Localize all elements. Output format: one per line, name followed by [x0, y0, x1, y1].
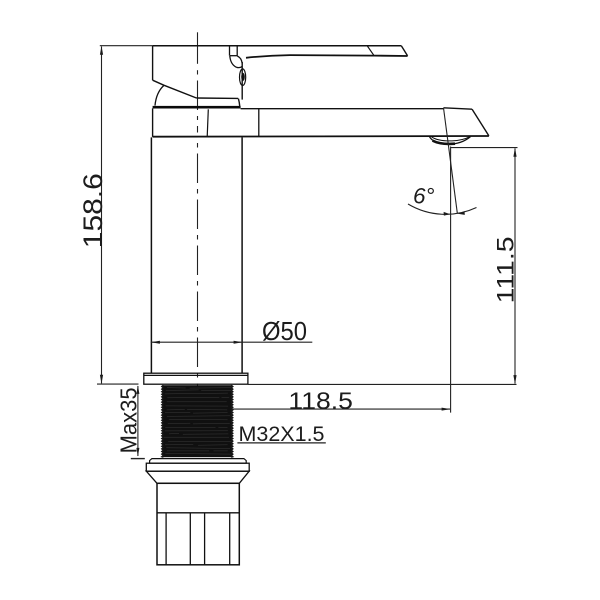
svg-text:Max35: Max35	[115, 387, 141, 453]
svg-text:111.5: 111.5	[493, 236, 520, 303]
svg-text:118.5: 118.5	[288, 388, 353, 415]
svg-text:M32X1.5: M32X1.5	[239, 422, 325, 446]
svg-text:Ø50: Ø50	[262, 316, 307, 346]
svg-text:6°: 6°	[413, 183, 435, 208]
svg-text:158.6: 158.6	[78, 173, 108, 248]
